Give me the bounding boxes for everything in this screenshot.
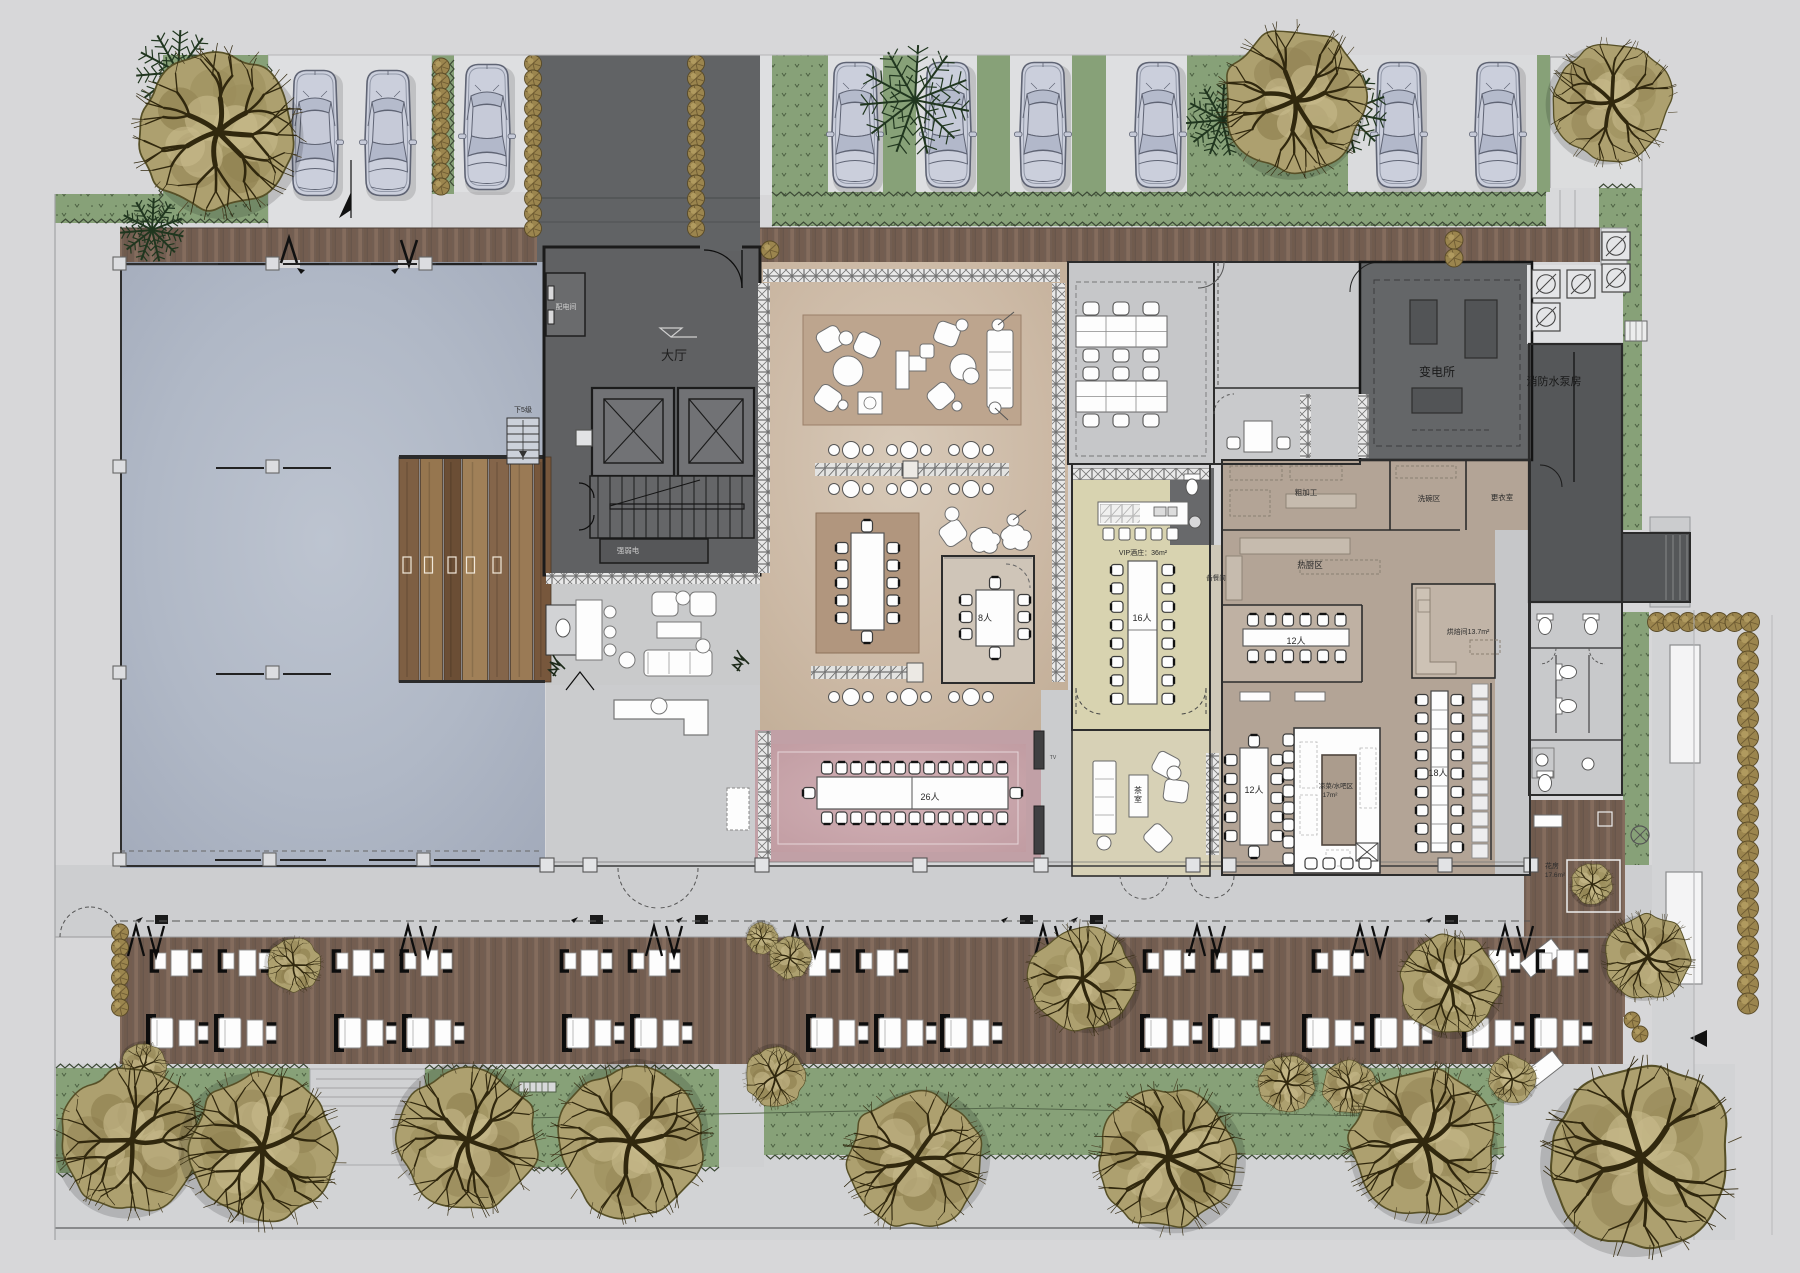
svg-text:8人: 8人 [978,613,992,623]
svg-text:备餐间: 备餐间 [1206,573,1226,582]
svg-text:18人: 18人 [1428,768,1447,778]
svg-text:26人: 26人 [920,792,939,802]
svg-text:茶室: 茶室 [1134,785,1142,804]
svg-text:12人: 12人 [1286,636,1305,646]
svg-text:花房: 花房 [1545,861,1559,870]
svg-text:热厨区: 热厨区 [1297,560,1323,570]
svg-text:烘焙间13.7m²: 烘焙间13.7m² [1447,627,1490,636]
svg-text:VIP酒庄：36m²: VIP酒庄：36m² [1119,548,1168,557]
svg-text:消防水泵房: 消防水泵房 [1527,374,1582,388]
svg-text:TV: TV [1050,755,1057,761]
svg-text:强弱电: 强弱电 [617,545,640,555]
svg-text:洗碗区: 洗碗区 [1418,493,1441,503]
svg-text:下5级: 下5级 [514,405,532,414]
svg-text:变电所: 变电所 [1419,364,1455,379]
svg-text:配电间: 配电间 [556,302,577,311]
svg-text:17m²: 17m² [1323,792,1339,799]
svg-text:更衣室: 更衣室 [1491,492,1514,502]
svg-text:凉菜/水吧区: 凉菜/水吧区 [1319,781,1354,790]
svg-text:12人: 12人 [1244,785,1263,795]
svg-text:16人: 16人 [1132,613,1151,623]
svg-text:17.6m²: 17.6m² [1545,872,1566,879]
svg-text:粗加工: 粗加工 [1295,487,1318,497]
svg-text:大厅: 大厅 [661,348,687,363]
